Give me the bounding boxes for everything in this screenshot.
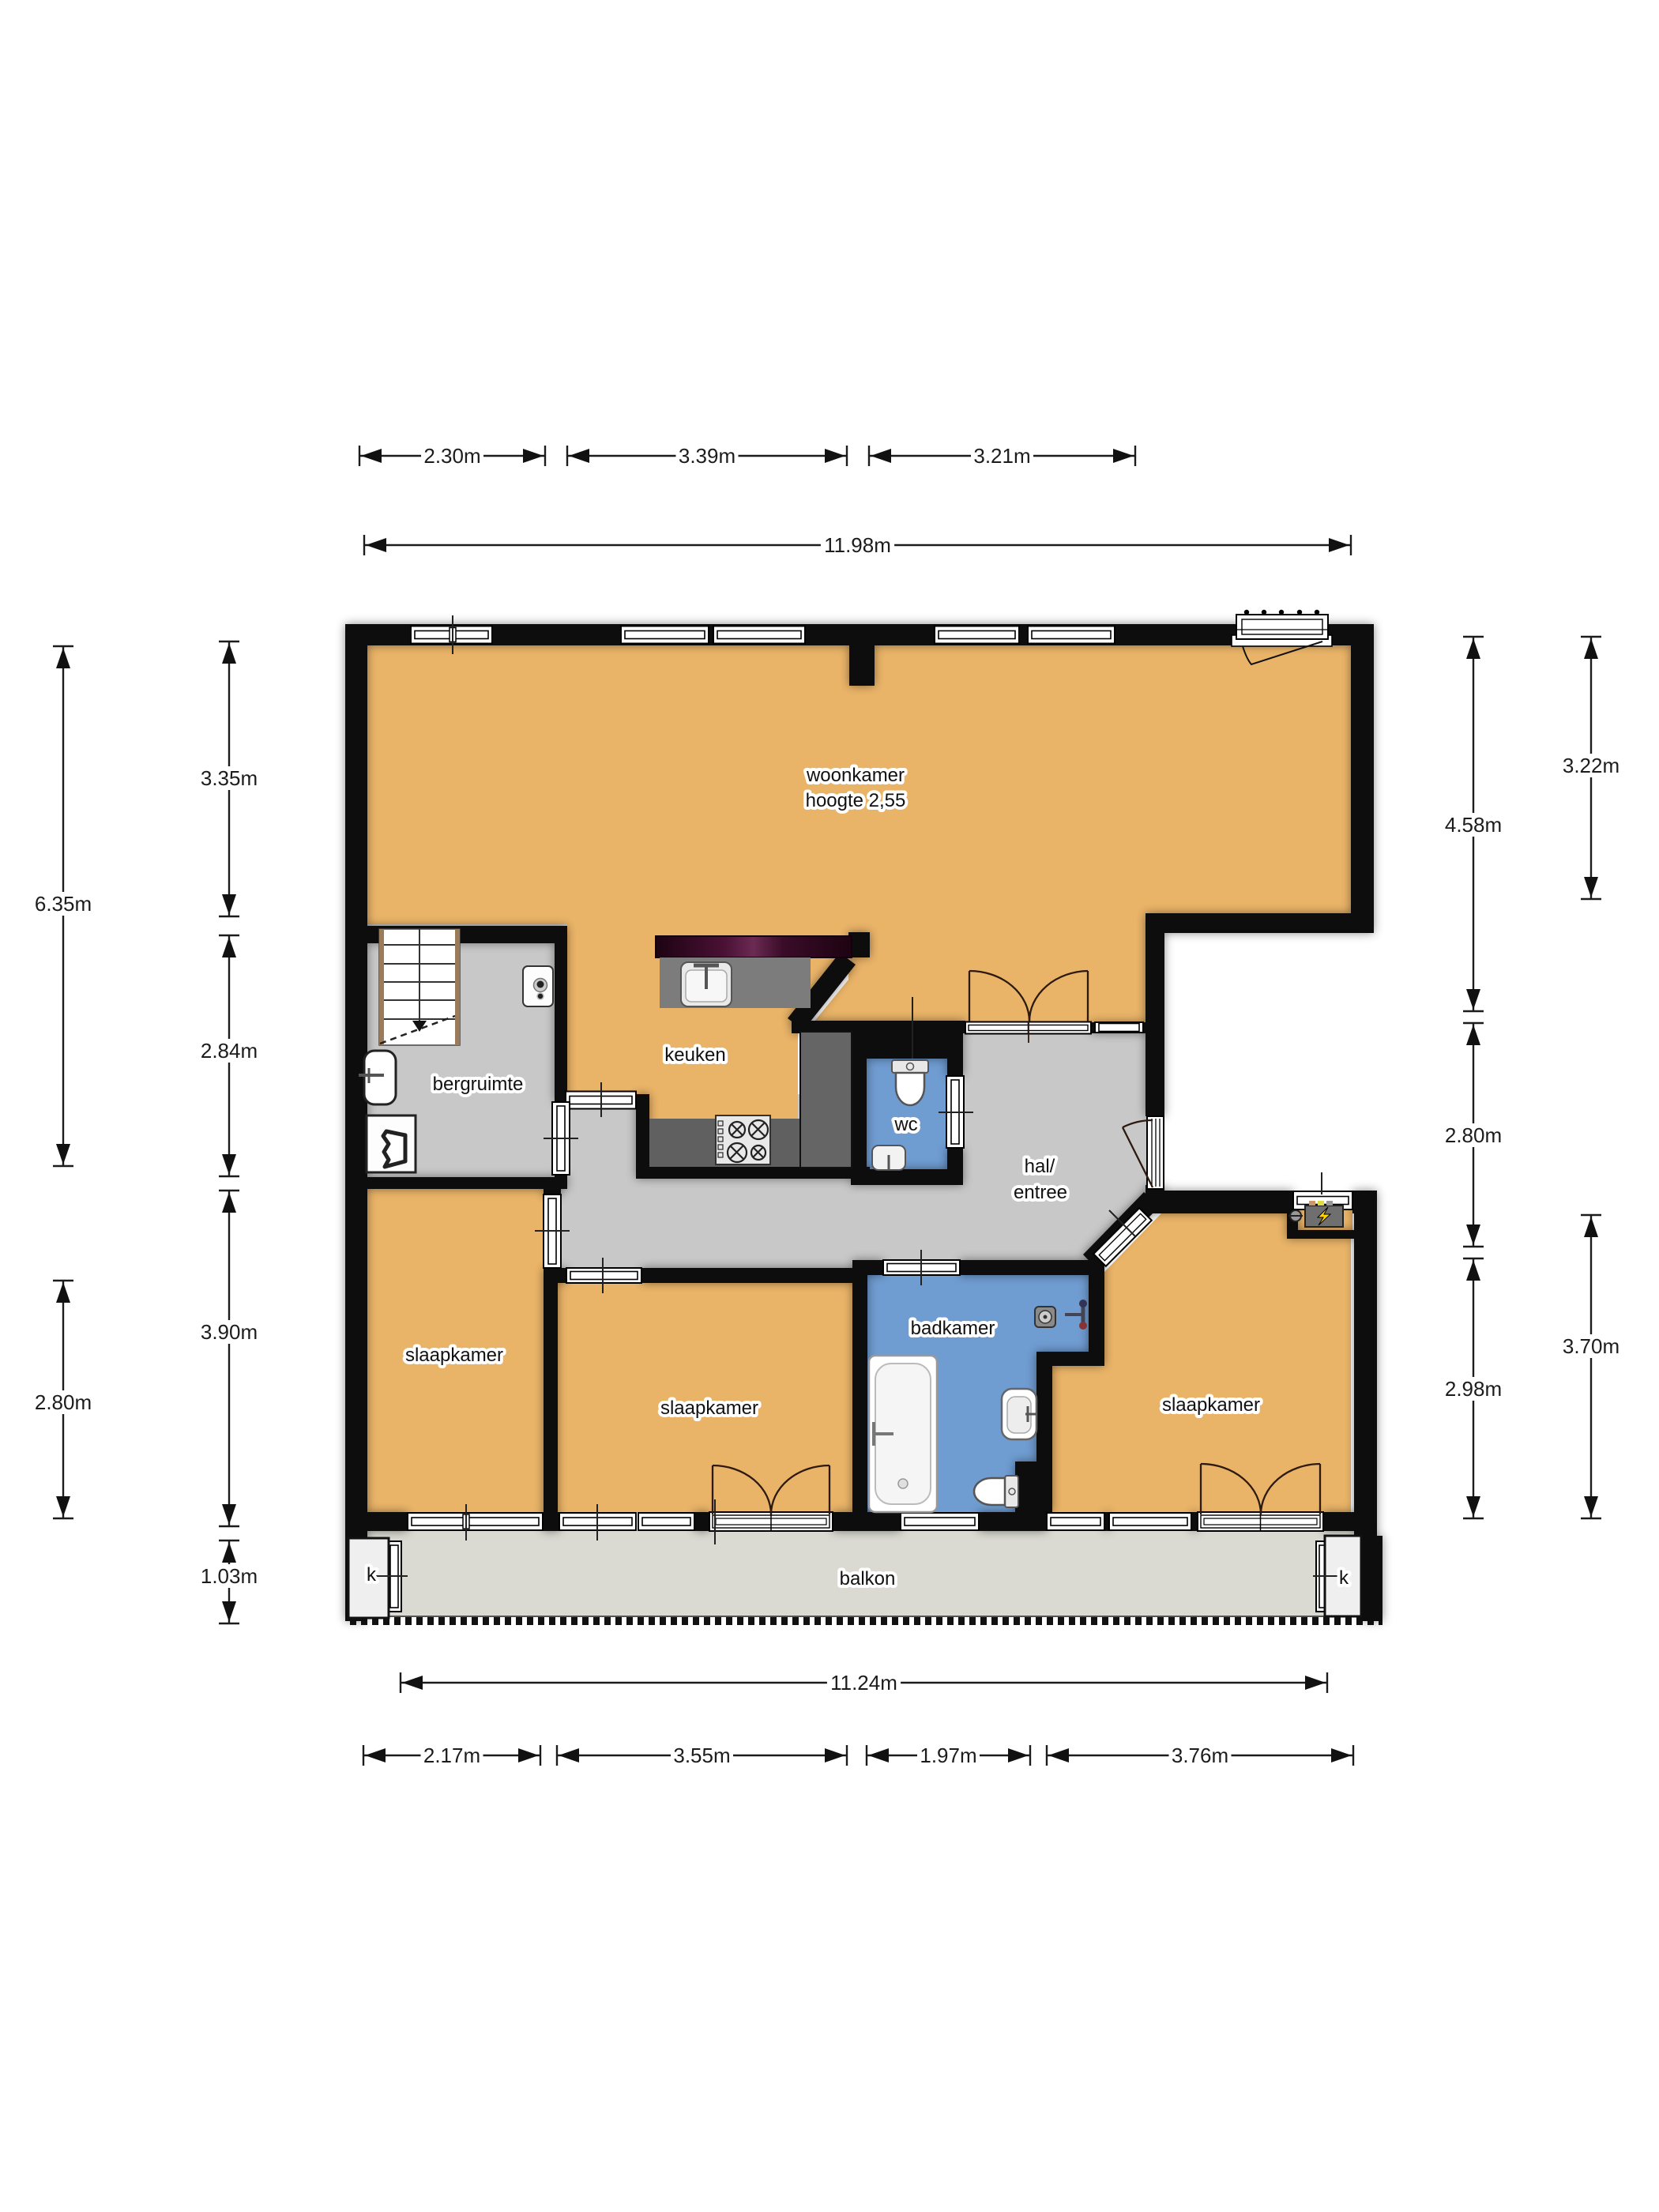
svg-text:6.35m: 6.35m: [35, 892, 92, 916]
svg-text:1.97m: 1.97m: [920, 1744, 976, 1767]
svg-text:bergruimte: bergruimte: [433, 1074, 524, 1095]
svg-text:2.80m: 2.80m: [35, 1390, 92, 1414]
svg-text:3.39m: 3.39m: [679, 444, 735, 468]
svg-text:3.70m: 3.70m: [1563, 1334, 1619, 1358]
svg-text:balkon: balkon: [840, 1568, 896, 1589]
svg-text:hoogte 2,55: hoogte 2,55: [806, 790, 906, 811]
svg-text:k: k: [367, 1564, 377, 1586]
svg-text:k: k: [1339, 1567, 1349, 1589]
svg-text:keuken: keuken: [664, 1044, 725, 1066]
svg-text:hal/: hal/: [1025, 1156, 1055, 1177]
svg-text:2.80m: 2.80m: [1445, 1123, 1502, 1147]
svg-text:badkamer: badkamer: [911, 1318, 995, 1339]
svg-text:woonkamer: woonkamer: [806, 765, 905, 786]
svg-text:2.17m: 2.17m: [423, 1744, 480, 1767]
svg-text:1.03m: 1.03m: [201, 1564, 258, 1588]
svg-text:2.98m: 2.98m: [1445, 1377, 1502, 1401]
svg-text:3.55m: 3.55m: [673, 1744, 730, 1767]
svg-text:4.58m: 4.58m: [1445, 813, 1502, 837]
svg-text:2.30m: 2.30m: [423, 444, 480, 468]
svg-text:2.84m: 2.84m: [201, 1039, 258, 1063]
svg-text:11.98m: 11.98m: [824, 533, 891, 557]
svg-text:3.22m: 3.22m: [1563, 754, 1619, 777]
svg-text:slaapkamer: slaapkamer: [405, 1345, 503, 1366]
svg-text:slaapkamer: slaapkamer: [1162, 1394, 1260, 1416]
svg-text:3.21m: 3.21m: [973, 444, 1030, 468]
svg-text:3.76m: 3.76m: [1172, 1744, 1228, 1767]
svg-text:3.35m: 3.35m: [201, 766, 258, 790]
svg-text:slaapkamer: slaapkamer: [660, 1398, 758, 1419]
svg-text:entree: entree: [1014, 1182, 1067, 1203]
svg-text:wc: wc: [893, 1114, 917, 1135]
svg-text:11.24m: 11.24m: [830, 1671, 897, 1695]
svg-text:3.90m: 3.90m: [201, 1320, 258, 1344]
